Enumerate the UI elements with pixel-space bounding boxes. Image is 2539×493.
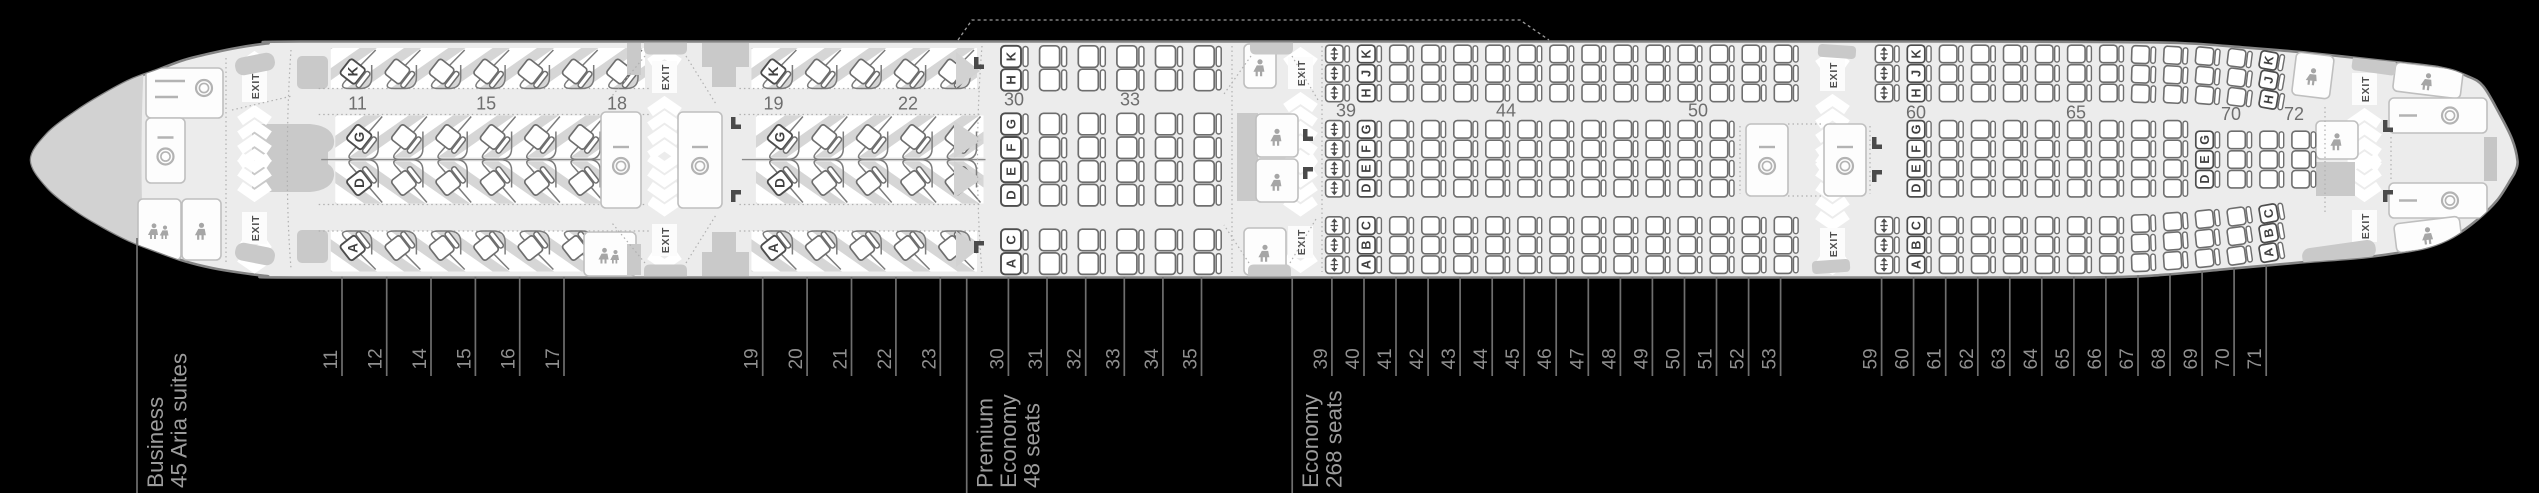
svg-text:22: 22 [875, 348, 896, 369]
svg-text:65: 65 [2066, 102, 2086, 122]
svg-text:48: 48 [1599, 348, 1620, 369]
svg-text:F: F [1360, 145, 1374, 153]
svg-text:45: 45 [1503, 348, 1524, 369]
svg-text:39: 39 [1311, 348, 1332, 369]
svg-text:B: B [1360, 241, 1374, 250]
svg-text:EXIT: EXIT [1296, 229, 1308, 256]
svg-text:G: G [773, 132, 788, 143]
svg-text:67: 67 [2117, 348, 2138, 369]
svg-text:51: 51 [1696, 348, 1717, 369]
svg-text:D: D [1909, 184, 1923, 193]
svg-text:EXIT: EXIT [1828, 231, 1840, 258]
svg-text:52: 52 [1728, 348, 1749, 369]
svg-text:44: 44 [1496, 100, 1516, 120]
svg-text:61: 61 [1925, 348, 1946, 369]
svg-text:40: 40 [1343, 348, 1364, 369]
svg-text:60: 60 [1893, 348, 1914, 369]
svg-text:EXIT: EXIT [660, 227, 672, 254]
svg-text:43: 43 [1439, 348, 1460, 369]
svg-text:EXIT: EXIT [1296, 60, 1308, 87]
svg-text:66: 66 [2085, 348, 2106, 369]
svg-text:30: 30 [1004, 89, 1024, 109]
svg-text:18: 18 [607, 94, 627, 114]
svg-text:53: 53 [1760, 348, 1781, 369]
svg-text:EXIT: EXIT [2360, 76, 2372, 103]
svg-text:33: 33 [1103, 348, 1124, 369]
svg-text:EXIT: EXIT [660, 64, 672, 91]
svg-text:G: G [1003, 119, 1018, 129]
svg-text:62: 62 [1957, 348, 1978, 369]
svg-text:E: E [1360, 164, 1374, 172]
svg-text:44: 44 [1471, 348, 1492, 370]
svg-text:23: 23 [919, 348, 940, 369]
svg-text:K: K [1003, 51, 1018, 61]
svg-text:G: G [2198, 135, 2212, 145]
svg-text:19: 19 [742, 348, 763, 369]
svg-text:50: 50 [1688, 100, 1708, 120]
svg-text:H: H [1909, 88, 1923, 97]
svg-text:30: 30 [987, 348, 1008, 369]
svg-text:EXIT: EXIT [1828, 62, 1840, 89]
svg-text:D: D [1003, 190, 1018, 199]
svg-text:59: 59 [1861, 348, 1882, 369]
svg-text:EXIT: EXIT [250, 215, 262, 242]
svg-text:65: 65 [2053, 348, 2074, 369]
svg-text:15: 15 [454, 348, 475, 369]
svg-text:16: 16 [499, 348, 520, 369]
svg-text:35: 35 [1181, 348, 1202, 369]
svg-text:A: A [345, 243, 360, 253]
svg-text:K: K [1360, 49, 1374, 58]
svg-text:D: D [352, 178, 367, 188]
svg-text:22: 22 [898, 94, 918, 114]
svg-text:E: E [1003, 167, 1018, 176]
svg-text:Premium: Premium [973, 398, 998, 488]
svg-text:34: 34 [1142, 348, 1163, 370]
svg-text:70: 70 [2221, 104, 2241, 124]
svg-text:D: D [1360, 184, 1374, 193]
svg-text:D: D [773, 178, 788, 188]
svg-text:71: 71 [2245, 348, 2266, 369]
svg-text:C: C [1003, 235, 1018, 245]
svg-text:14: 14 [410, 348, 431, 370]
svg-text:47: 47 [1567, 348, 1588, 369]
svg-text:70: 70 [2213, 348, 2234, 369]
svg-text:J: J [1909, 70, 1923, 77]
svg-text:G: G [1360, 124, 1374, 134]
svg-text:69: 69 [2181, 348, 2202, 369]
svg-text:G: G [352, 132, 367, 143]
svg-text:A: A [1909, 260, 1923, 269]
svg-text:K: K [766, 66, 781, 76]
svg-text:H: H [1003, 75, 1018, 84]
svg-text:EXIT: EXIT [2360, 213, 2372, 240]
svg-text:60: 60 [1906, 102, 1926, 122]
svg-text:EXIT: EXIT [250, 73, 262, 100]
svg-text:21: 21 [831, 348, 852, 369]
svg-text:Economy: Economy [1298, 393, 1323, 488]
svg-text:33: 33 [1120, 89, 1140, 109]
svg-text:Economy: Economy [996, 393, 1021, 488]
svg-text:45 Aria suites: 45 Aria suites [167, 353, 192, 488]
svg-text:12: 12 [366, 348, 387, 369]
svg-text:K: K [345, 66, 360, 76]
svg-text:E: E [2198, 155, 2212, 163]
svg-text:F: F [1003, 144, 1018, 152]
svg-text:72: 72 [2284, 104, 2304, 124]
svg-text:Business: Business [143, 397, 168, 488]
svg-text:J: J [1360, 70, 1374, 77]
svg-text:11: 11 [348, 94, 367, 114]
svg-text:32: 32 [1065, 348, 1086, 369]
svg-text:39: 39 [1336, 100, 1356, 120]
svg-text:49: 49 [1631, 348, 1652, 369]
svg-text:C: C [1360, 221, 1374, 230]
svg-text:A: A [1360, 260, 1374, 269]
svg-text:19: 19 [763, 94, 783, 114]
svg-text:D: D [2198, 175, 2212, 184]
svg-text:A: A [766, 243, 781, 253]
svg-text:15: 15 [476, 94, 496, 114]
svg-text:G: G [1909, 124, 1923, 134]
svg-text:F: F [1909, 145, 1923, 153]
svg-text:H: H [1360, 88, 1374, 97]
svg-text:K: K [1909, 49, 1923, 58]
svg-text:A: A [1003, 258, 1018, 268]
svg-text:41: 41 [1375, 348, 1396, 369]
svg-text:E: E [1909, 164, 1923, 172]
svg-text:268 seats: 268 seats [1322, 390, 1347, 488]
svg-text:48 seats: 48 seats [1020, 403, 1045, 488]
svg-text:64: 64 [2021, 348, 2042, 370]
svg-text:63: 63 [1989, 348, 2010, 369]
svg-text:C: C [1909, 221, 1923, 230]
svg-text:46: 46 [1535, 348, 1556, 369]
svg-text:31: 31 [1026, 348, 1047, 369]
svg-text:50: 50 [1664, 348, 1685, 369]
svg-text:20: 20 [786, 348, 807, 369]
svg-text:17: 17 [543, 348, 564, 369]
svg-text:B: B [1909, 241, 1923, 250]
svg-text:68: 68 [2149, 348, 2170, 369]
svg-text:11: 11 [321, 350, 342, 370]
svg-text:42: 42 [1407, 348, 1428, 369]
